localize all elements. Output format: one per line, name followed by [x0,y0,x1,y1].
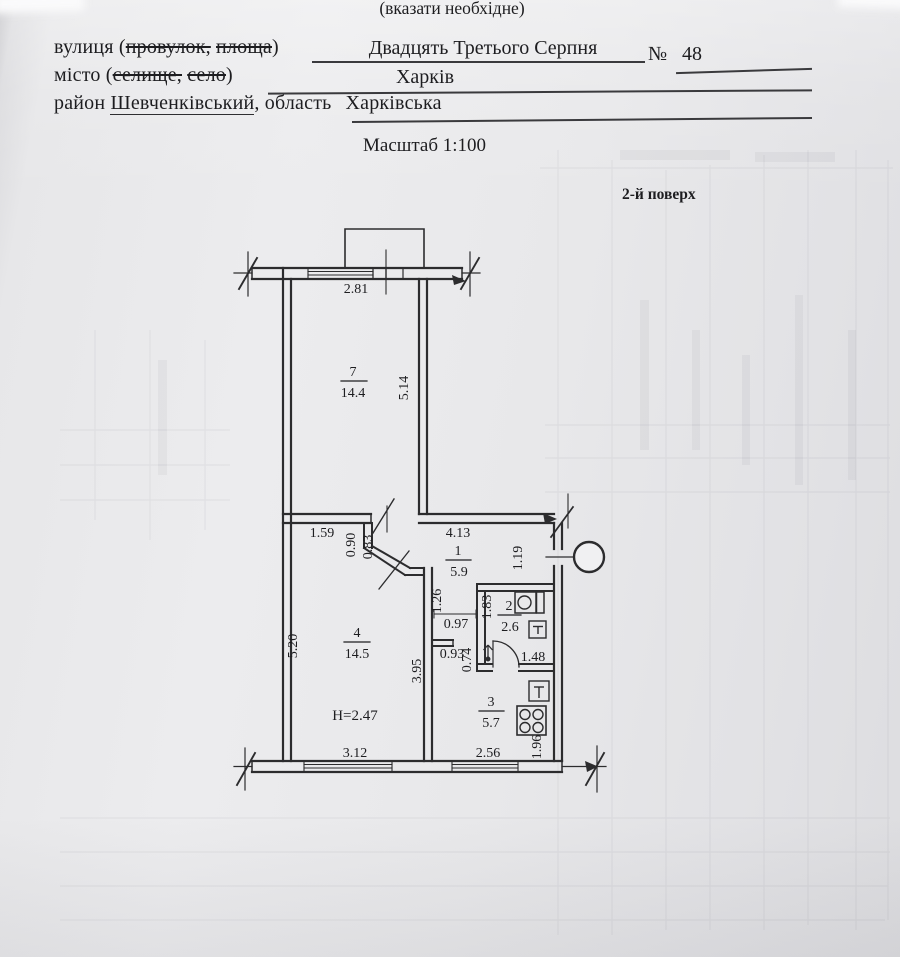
balcony-door-symbol [386,268,403,279]
walls-group [234,229,606,792]
svg-text:2.6: 2.6 [501,620,519,635]
svg-text:4: 4 [354,626,361,641]
dim-label: 5.14 [397,376,412,401]
dim-label: 2.81 [344,282,369,297]
dim-label: 1.83 [480,595,495,620]
scanned-floor-plan-page: (вказати необхідне) вулиця (провулок, пл… [0,0,900,957]
stove-icon [517,706,546,735]
washbasin-icon [529,621,546,638]
dim-label: 1.26 [430,589,445,614]
dimension-ticks-bottom [234,746,606,792]
dim-label: 3.12 [343,746,368,761]
bathroom-door-arc [493,641,519,667]
svg-text:14.4: 14.4 [341,386,366,401]
bleed-through-text-smudges [158,150,856,485]
balcony-door-symbol [373,268,386,279]
window-symbol-kitchen [452,761,518,772]
svg-text:5.7: 5.7 [482,716,500,731]
balcony-outline [345,229,424,268]
entrance-circle-symbol [574,542,604,572]
room-label-1: 1 5.9 [446,544,471,580]
svg-text:1: 1 [455,544,462,559]
svg-text:2: 2 [506,599,513,614]
window-symbol-room4 [304,761,392,772]
bleed-through-table [60,150,893,935]
dim-label: 2.56 [476,746,501,761]
dim-label: 0.90 [344,533,359,558]
svg-text:3: 3 [488,695,495,710]
svg-text:5.9: 5.9 [450,565,468,580]
room-label-3: 3 5.7 [479,695,504,731]
floor-plan-drawing: 2.81 5.14 1.59 0.90 0.83 4.13 1.19 1.26 … [0,0,900,957]
dim-label: 1.96 [530,735,545,760]
window-symbol-top [308,268,373,279]
door-swing-line [379,551,409,589]
dim-label: 1.59 [310,526,335,541]
dim-label: 1.48 [521,650,546,665]
dim-label: 1.19 [511,546,526,571]
dim-label: 3.95 [410,659,425,684]
dim-label: 0.74 [460,648,475,673]
svg-text:14.5: 14.5 [345,647,370,662]
ceiling-height-label: H=2.47 [332,708,378,724]
door-opening-mark [373,499,394,533]
room-label-4: 4 14.5 [344,626,370,662]
toilet-icon [515,592,544,613]
room-label-2: 2 2.6 [498,599,521,635]
room-label-7: 7 14.4 [341,365,367,401]
dim-label: 0.83 [361,535,376,560]
dimension-labels: 2.81 5.14 1.59 0.90 0.83 4.13 1.19 1.26 … [286,282,545,761]
dim-label: 0.97 [444,617,469,632]
dim-label: 5.20 [286,634,301,659]
kitchen-sink-icon [529,681,549,701]
dim-label: 4.13 [446,526,471,541]
svg-text:7: 7 [350,365,357,380]
